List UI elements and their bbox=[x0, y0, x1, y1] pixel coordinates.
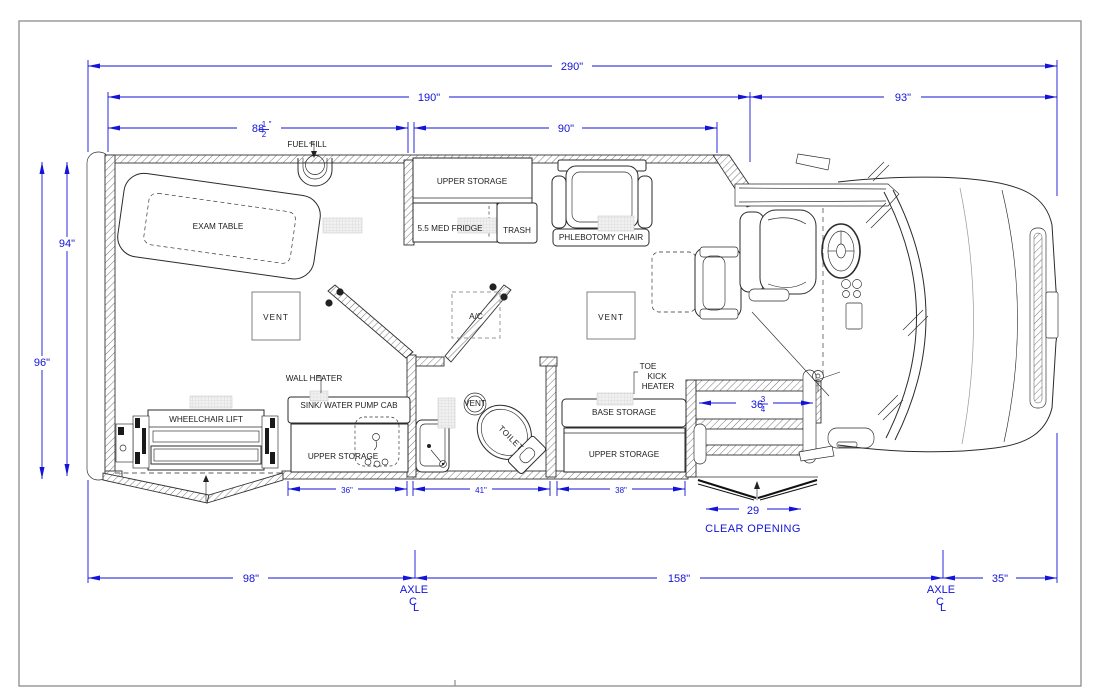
svg-text:TOE: TOE bbox=[640, 362, 657, 371]
grille-icon bbox=[190, 396, 232, 408]
dim-overall-length: 290" bbox=[561, 61, 583, 73]
med-fridge-label: 5.5 MED FRIDGE bbox=[417, 224, 483, 233]
trash-label: TRASH bbox=[503, 226, 531, 235]
dim-clear-opening: 29 bbox=[747, 505, 759, 517]
dim-mid-section: 90" bbox=[558, 123, 574, 135]
dim-sink-width: 36" bbox=[341, 486, 353, 495]
passenger-seat bbox=[695, 248, 741, 318]
axle-centerline-front: AXLE C L bbox=[927, 584, 955, 614]
vent-right-label: VENT bbox=[598, 313, 624, 322]
upper-storage-right-label: UPPER STORAGE bbox=[589, 450, 660, 459]
door-panel-left bbox=[328, 285, 413, 358]
dim-rear-axle: 98" bbox=[243, 573, 259, 585]
dim-exterior-height: 96" bbox=[34, 357, 50, 369]
truck-cab bbox=[652, 154, 1058, 461]
svg-text:KICK: KICK bbox=[647, 372, 667, 381]
axle-centerline-rear: AXLE C L bbox=[400, 584, 428, 614]
svg-text:3: 3 bbox=[761, 395, 766, 404]
dim-bath-width: 41" bbox=[475, 486, 487, 495]
front-bumper-center bbox=[1046, 292, 1058, 338]
lift-doors bbox=[103, 473, 283, 503]
wheelchair-lift-label: WHEELCHAIR LIFT bbox=[169, 415, 243, 424]
toe-kick-heater-label: TOE KICK HEATER bbox=[640, 362, 675, 391]
entry-doors bbox=[688, 477, 818, 500]
vent-left-label: VENT bbox=[263, 313, 289, 322]
wall-heater-grille bbox=[310, 391, 328, 401]
svg-text:AXLE: AXLE bbox=[927, 584, 955, 596]
clear-opening-label: CLEAR OPENING bbox=[705, 523, 801, 535]
passenger-seat-footprint bbox=[652, 252, 696, 312]
floor-plan-drawing: 290" 190" 93" 88 1 2 " 90" 94" 96" 36" 4… bbox=[0, 0, 1100, 690]
upper-storage-top-label: UPPER STORAGE bbox=[437, 177, 508, 186]
svg-text:4: 4 bbox=[761, 405, 766, 414]
exam-table-label: EXAM TABLE bbox=[193, 222, 244, 231]
svg-text:2: 2 bbox=[262, 130, 267, 139]
dim-wheelbase: 158" bbox=[668, 573, 690, 585]
bath-right-wall bbox=[546, 366, 556, 477]
base-storage-label: BASE STORAGE bbox=[592, 408, 657, 417]
dim-front-overhang: 35" bbox=[992, 573, 1008, 585]
dim-interior-height: 94" bbox=[59, 238, 75, 250]
sheet-border bbox=[19, 21, 1081, 686]
ceiling-fixtures bbox=[252, 292, 635, 340]
dimensions: 290" 190" 93" 88 1 2 " 90" 94" 96" 36" 4… bbox=[27, 60, 1057, 614]
rear-wall bbox=[105, 155, 115, 480]
svg-text:": " bbox=[269, 120, 272, 129]
grille-icon bbox=[598, 216, 634, 231]
dim-storage-width: 38" bbox=[615, 486, 627, 495]
grille-icon bbox=[323, 218, 362, 233]
grille-icon bbox=[438, 398, 455, 428]
toe-kick-grille bbox=[597, 393, 633, 405]
upper-storage-sink-label: UPPER STORAGE bbox=[308, 452, 379, 461]
svg-text:L: L bbox=[413, 602, 419, 614]
svg-text:1: 1 bbox=[262, 120, 267, 129]
dim-box-length: 190" bbox=[418, 92, 440, 104]
steering-wheel bbox=[822, 224, 860, 278]
phlebotomy-chair-label: PHLEBOTOMY CHAIR bbox=[559, 233, 643, 242]
vent-fan-label: VENT bbox=[464, 399, 486, 408]
ac-label: A/C bbox=[469, 312, 483, 321]
dim-rear-section: 88 1 2 " bbox=[252, 120, 272, 139]
dim-cab-length: 93" bbox=[895, 92, 911, 104]
sink-cab-label: SINK/ WATER PUMP CAB bbox=[300, 401, 398, 410]
svg-text:HEATER: HEATER bbox=[642, 382, 675, 391]
fuel-fill-label: FUEL FILL bbox=[287, 140, 327, 149]
floor-plan-sheet: 290" 190" 93" 88 1 2 " 90" 94" 96" 36" 4… bbox=[0, 0, 1100, 690]
svg-text:AXLE: AXLE bbox=[400, 584, 428, 596]
wall-heater-label: WALL HEATER bbox=[286, 374, 343, 383]
svg-text:L: L bbox=[940, 602, 946, 614]
side-mirror bbox=[796, 154, 830, 170]
